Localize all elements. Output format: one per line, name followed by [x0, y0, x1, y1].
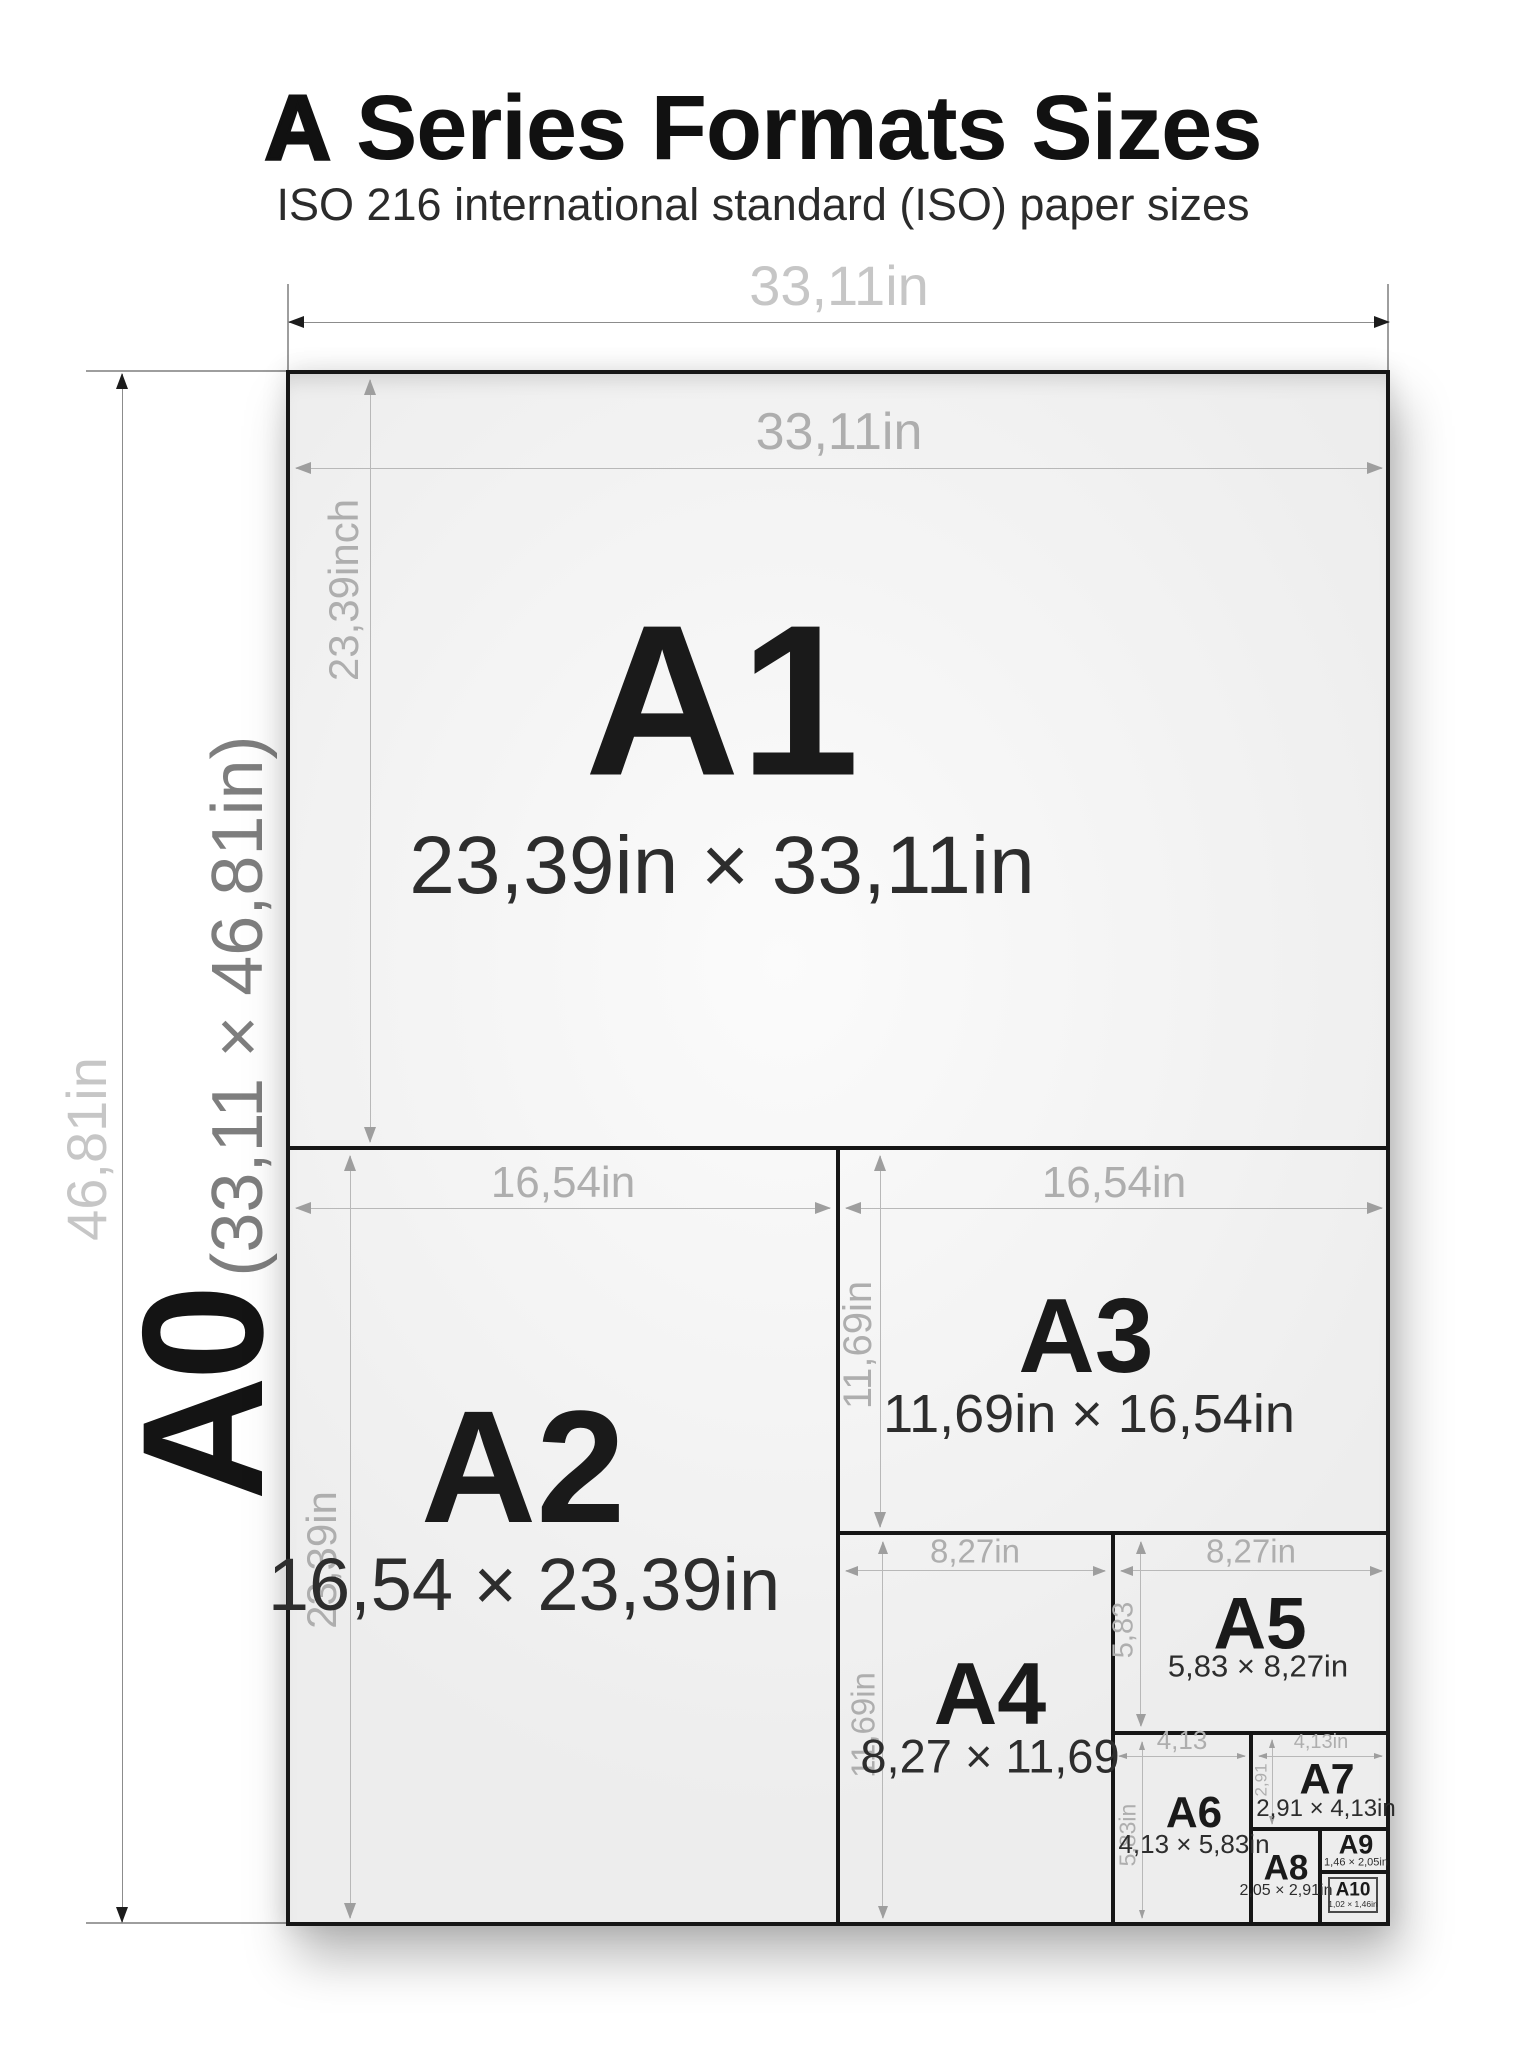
a5-width-dimension-line: [1121, 1570, 1382, 1571]
arrow-right-icon: [1367, 1202, 1383, 1214]
a1-height-dim-label: 23,39inch: [323, 499, 365, 681]
a4-width-dimension-line: [846, 1570, 1105, 1571]
a3-width-dim-label: 16,54in: [1042, 1161, 1186, 1205]
arrow-up-icon: [364, 379, 376, 395]
a4-size-text: 8,27 × 11,69: [860, 1733, 1119, 1780]
a8-size-text: 2,05 × 2,91in: [1240, 1883, 1333, 1899]
arrow-left-icon: [845, 1202, 861, 1214]
a3-width-dimension-line: [846, 1208, 1382, 1209]
a5-width-dim-label: 8,27in: [1206, 1535, 1296, 1568]
arrow-left-icon: [1258, 1753, 1267, 1759]
divider-a9-a10: [1320, 1870, 1388, 1874]
arrow-up-icon: [874, 1155, 886, 1171]
a7-height-dim-label: 2,91: [1253, 1763, 1270, 1796]
a6-size-text: 4,13 × 5,83in: [1118, 1831, 1269, 1857]
arrow-right-icon: [1370, 1566, 1383, 1576]
arrow-up-icon: [344, 1155, 356, 1171]
a2-size-text: 16,54 × 23,39in: [268, 1548, 780, 1622]
a0-width-dim-label: 33,11in: [749, 258, 929, 314]
a1-height-dimension-line: [370, 380, 371, 1142]
a3-height-dim-label: 11,69in: [838, 1281, 878, 1409]
arrow-up-icon: [1136, 1541, 1146, 1554]
a2-width-dimension-line: [296, 1208, 830, 1209]
a9-size-text: 1,46 × 2,05in: [1324, 1858, 1388, 1869]
arrow-right-icon: [1237, 1753, 1246, 1759]
a3-height-dimension-line: [880, 1156, 881, 1527]
a1-width-dimension-line: [296, 468, 1382, 469]
arrow-left-icon: [845, 1566, 858, 1576]
a3-size-text: 11,69in × 16,54in: [883, 1387, 1295, 1441]
a2-label: A2: [421, 1387, 626, 1547]
arrow-right-icon: [1367, 462, 1383, 474]
extension-line-left-top: [86, 370, 287, 372]
a0-height-dim-label: 46,81in: [59, 1057, 115, 1241]
a2-width-dim-label: 16,54in: [491, 1161, 635, 1205]
a4-label: A4: [934, 1650, 1047, 1738]
arrow-left-icon: [1118, 1753, 1127, 1759]
arrow-left-icon: [295, 462, 311, 474]
a5-height-dimension-line: [1140, 1542, 1141, 1726]
arrow-down-icon: [878, 1906, 888, 1919]
title-lead-letter: A: [264, 77, 329, 179]
divider-a8-a9: [1318, 1829, 1322, 1924]
a5-size-text: 5,83 × 8,27in: [1168, 1651, 1348, 1682]
a1-width-dim-label: 33,11in: [756, 406, 923, 458]
arrow-down-icon: [1136, 1714, 1146, 1727]
a5-height-dim-label: 5,83: [1110, 1602, 1139, 1658]
a8-label: A8: [1264, 1851, 1309, 1886]
arrow-down-icon: [344, 1903, 356, 1919]
arrow-up-icon: [878, 1541, 888, 1554]
arrow-down-icon: [874, 1512, 886, 1528]
a6-width-dimension-line: [1119, 1756, 1245, 1757]
a2-height-dimension-line: [350, 1156, 351, 1918]
a4-width-dim-label: 8,27in: [930, 1535, 1020, 1568]
arrow-right-icon: [1093, 1566, 1106, 1576]
arrow-down-icon: [116, 1907, 128, 1923]
a0-dimensions-text: (33,11 × 46,81in): [202, 736, 274, 1277]
arrow-left-icon: [1120, 1566, 1133, 1576]
extension-line-top-right: [1387, 284, 1389, 372]
arrow-down-icon: [364, 1127, 376, 1143]
arrow-up-icon: [1269, 1739, 1275, 1748]
arrow-right-icon: [1374, 1753, 1383, 1759]
extension-line-top-left: [287, 284, 289, 372]
a-series-formats-diagram: ASeries Formats Sizes ISO 216 internatio…: [0, 0, 1526, 2048]
title-text: Series Formats Sizes: [356, 77, 1262, 179]
arrow-right-icon: [815, 1202, 831, 1214]
arrow-up-icon: [116, 373, 128, 389]
a7-size-text: 2,91 × 4,13in: [1256, 1797, 1395, 1821]
a0-side-label: A0 (33,11 × 46,81in): [117, 736, 289, 1501]
a0-width-dimension-line: [289, 322, 1389, 323]
a7-width-dim-label: 4,13in: [1294, 1732, 1349, 1752]
divider-a2-a3: [836, 1148, 840, 1924]
a1-label: A1: [585, 593, 860, 808]
a0-name: A0: [117, 1289, 289, 1501]
page-title: ASeries Formats Sizes: [0, 82, 1526, 174]
a1-size-text: 23,39in × 33,11in: [409, 825, 1034, 907]
a10-size-text: 1,02 × 1,46in: [1328, 1900, 1377, 1909]
arrow-left-icon: [295, 1202, 311, 1214]
arrow-down-icon: [1139, 1910, 1145, 1919]
a3-label: A3: [1018, 1283, 1154, 1389]
a6-width-dim-label: 4,13: [1157, 1727, 1208, 1753]
a10-label: A10: [1336, 1881, 1371, 1900]
arrow-up-icon: [1139, 1741, 1145, 1750]
arrow-left-icon: [288, 316, 304, 328]
a9-label: A9: [1339, 1832, 1374, 1859]
arrow-right-icon: [1374, 316, 1390, 328]
page-subtitle: ISO 216 international standard (ISO) pap…: [0, 182, 1526, 227]
